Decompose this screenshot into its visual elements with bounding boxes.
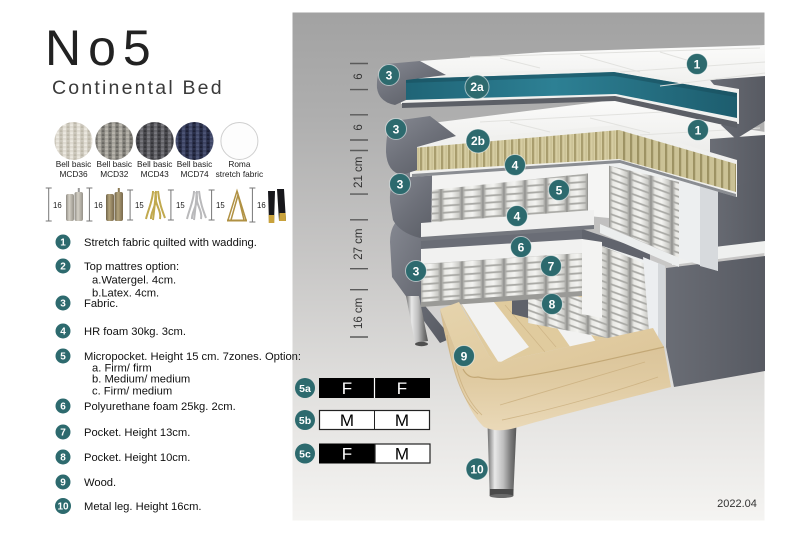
svg-text:M: M — [340, 411, 354, 430]
svg-text:F: F — [342, 445, 352, 464]
svg-text:5a: 5a — [299, 383, 311, 395]
svg-text:F: F — [342, 379, 352, 398]
svg-text:5b: 5b — [299, 415, 311, 427]
svg-text:M: M — [395, 445, 409, 464]
svg-text:M: M — [395, 411, 409, 430]
svg-text:5c: 5c — [299, 449, 311, 461]
svg-text:F: F — [397, 379, 407, 398]
